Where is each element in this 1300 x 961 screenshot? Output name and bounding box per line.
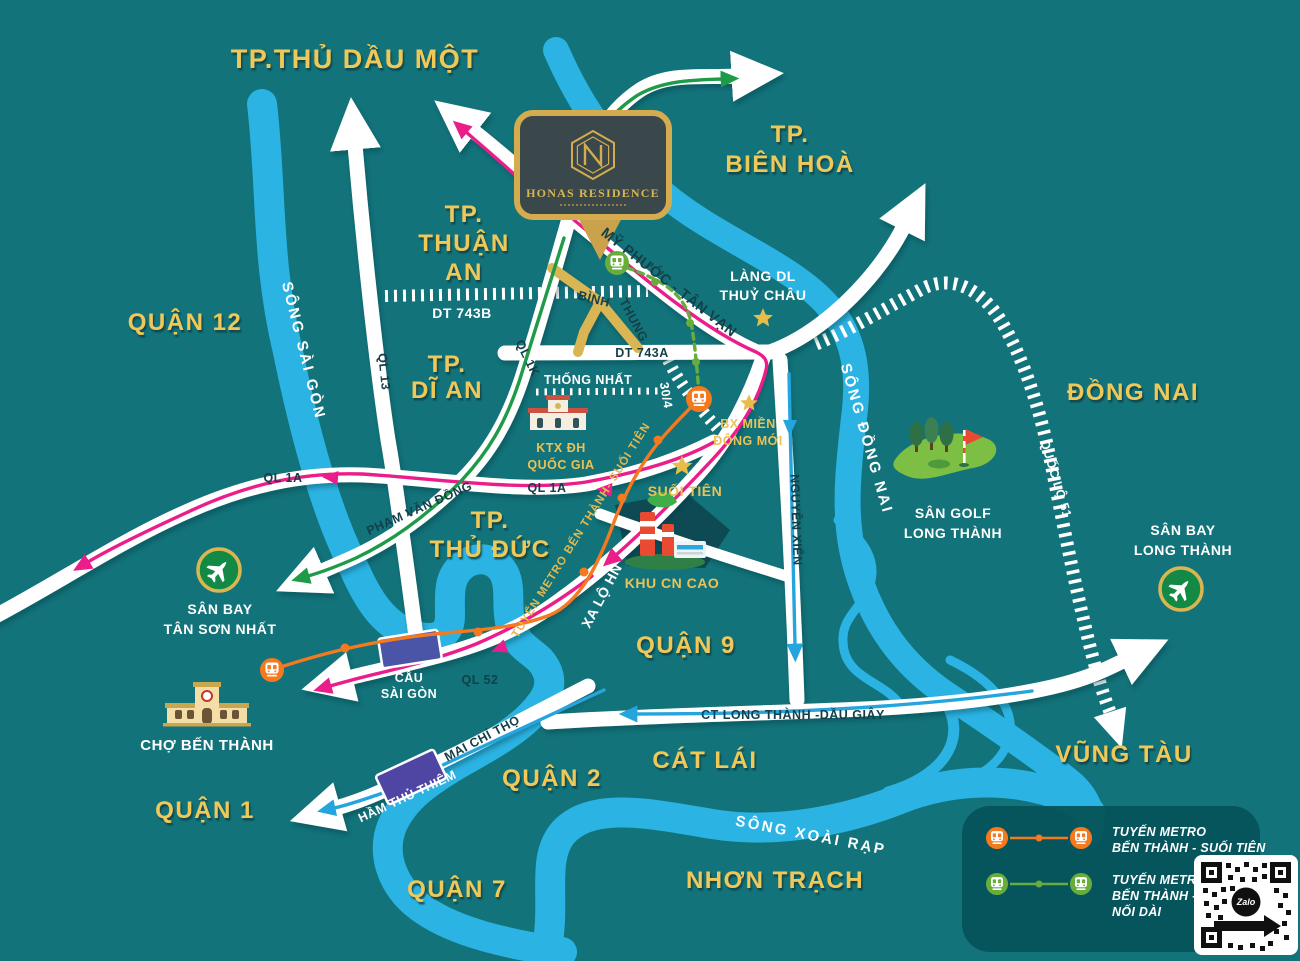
label-bien-hoa: TP. — [771, 121, 810, 148]
label-dt743b: DT 743B — [432, 305, 492, 321]
label-bx-mien-dong: BX MIỀN — [720, 416, 776, 431]
label-vung-tau: VŨNG TÀU — [1055, 740, 1192, 768]
label-thong-nhat: THỐNG NHẤT — [544, 372, 632, 387]
legend-label: NỐI DÀI — [1112, 904, 1162, 919]
train-icon — [1070, 873, 1092, 895]
map-canvas: HONAS RESIDENCE TP.THỦ DẦU MỘT TP. BIÊN … — [0, 0, 1300, 961]
label-thuan-an: AN — [445, 259, 483, 286]
legend-label: BẾN THÀNH - SUỐI TIÊN — [1112, 840, 1266, 855]
train-icon — [260, 658, 284, 682]
project-card-frame — [517, 113, 669, 217]
label-thuan-an: THUẬN — [418, 229, 510, 257]
label-cho-ben-thanh: CHỢ BẾN THÀNH — [140, 737, 273, 754]
train-icon — [686, 386, 712, 412]
project-name: HONAS RESIDENCE — [526, 186, 660, 200]
label-quan-1: QUẬN 1 — [155, 796, 255, 824]
label-cat-lai: CÁT LÁI — [652, 746, 757, 774]
label-bien-hoa: BIÊN HOÀ — [725, 150, 854, 178]
map-stage: HONAS RESIDENCE TP.THỦ DẦU MỘT TP. BIÊN … — [0, 0, 1300, 961]
label-ktx: KTX ĐH — [536, 441, 586, 455]
label-nhon-trach: NHƠN TRẠCH — [686, 867, 864, 894]
label-dt743a: DT 743A — [615, 346, 669, 360]
label-san-bay-tsn: SÂN BAY — [187, 600, 252, 617]
label-quan-7: QUẬN 7 — [407, 875, 507, 903]
airplane-icon — [198, 549, 240, 591]
label-ct-long-thanh: CT LONG THÀNH -DẦU GIÂY — [701, 707, 885, 722]
label-dong-nai: ĐỒNG NAI — [1067, 378, 1199, 406]
qr-code: Zalo — [1194, 855, 1298, 955]
label-ktx: QUỐC GIA — [527, 457, 594, 472]
label-san-bay-long-thanh: LONG THÀNH — [1134, 542, 1232, 558]
label-lang-dl: THUỶ CHÂU — [720, 286, 807, 303]
label-san-golf: LONG THÀNH — [904, 525, 1002, 541]
label-cau-sai-gon: CẦU — [395, 670, 424, 685]
train-icon — [986, 873, 1008, 895]
label-di-an: DĨ AN — [411, 376, 483, 404]
label-lang-dl: LÀNG DL — [730, 268, 796, 284]
label-thu-dau-mot: TP.THỦ DẦU MỘT — [231, 42, 480, 74]
train-icon — [986, 827, 1008, 849]
label-quan-2: QUẬN 2 — [502, 764, 602, 792]
label-san-golf: SÂN GOLF — [915, 504, 991, 521]
label-thu-duc: THỦ ĐỨC — [429, 534, 550, 563]
label-quan-12: QUẬN 12 — [128, 308, 243, 336]
label-ql1a: QL 1A — [263, 471, 302, 485]
label-san-bay-long-thanh: SÂN BAY — [1150, 521, 1215, 538]
label-bx-mien-dong: ĐÔNG MỚI — [713, 433, 783, 448]
label-thu-duc: TP. — [471, 507, 510, 534]
zalo-logo-text: Zalo — [1236, 897, 1256, 907]
label-khu-cn-cao: KHU CN CAO — [625, 575, 719, 591]
airplane-icon — [1160, 568, 1202, 610]
label-cau-sai-gon: SÀI GÒN — [381, 686, 437, 701]
label-di-an: TP. — [428, 351, 467, 378]
legend-label: TUYẾN METRO — [1112, 824, 1206, 839]
label-ql52: QL 52 — [461, 673, 498, 687]
legend-label: TUYẾN METRO — [1112, 872, 1206, 887]
label-quan-9: QUẬN 9 — [636, 631, 736, 659]
label-suoi-tien: SUỐI TIÊN — [648, 482, 723, 499]
train-icon — [1070, 827, 1092, 849]
label-thuan-an: TP. — [445, 201, 484, 228]
label-san-bay-tsn: TÂN SƠN NHẤT — [164, 620, 277, 637]
label-ql1a: QL 1A — [527, 481, 566, 495]
